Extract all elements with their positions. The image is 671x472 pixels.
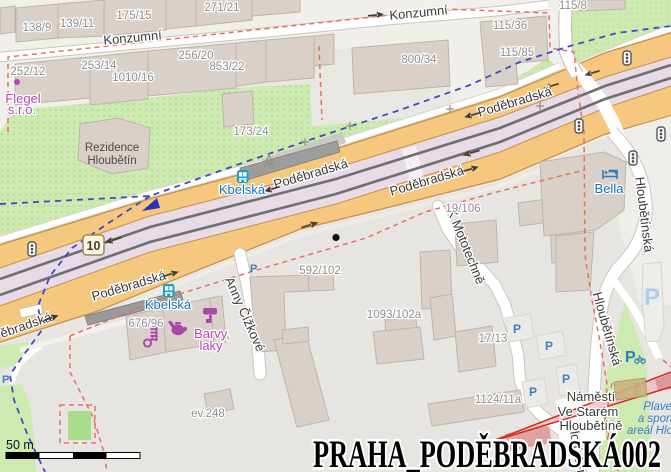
svg-text:P: P xyxy=(250,263,257,275)
svg-text:853/22: 853/22 xyxy=(209,61,244,73)
svg-text:P: P xyxy=(513,322,521,336)
svg-text:P: P xyxy=(2,374,9,386)
svg-text:800/34: 800/34 xyxy=(401,54,437,66)
svg-text:Bella: Bella xyxy=(595,181,625,196)
svg-text:115/36: 115/36 xyxy=(493,20,527,32)
svg-text:271/21: 271/21 xyxy=(204,2,239,14)
svg-text:Kbelská: Kbelská xyxy=(219,182,266,197)
svg-text:115/85: 115/85 xyxy=(500,47,534,59)
svg-text:P: P xyxy=(644,284,660,311)
svg-text:P: P xyxy=(545,339,553,353)
svg-text:laky: laky xyxy=(199,338,223,353)
svg-text:P: P xyxy=(562,372,570,386)
svg-text:256/20: 256/20 xyxy=(178,50,213,62)
svg-text:252/12: 252/12 xyxy=(10,66,45,78)
svg-text:s.r.o.: s.r.o. xyxy=(8,102,36,117)
svg-text:592/102: 592/102 xyxy=(299,265,341,277)
svg-text:50 m: 50 m xyxy=(6,438,34,452)
svg-text:P: P xyxy=(529,385,537,399)
svg-text:175/15: 175/15 xyxy=(116,10,151,22)
svg-text:a sport: a sport xyxy=(638,413,671,425)
svg-text:173/24: 173/24 xyxy=(233,126,269,138)
svg-text:1010/16: 1010/16 xyxy=(112,72,154,84)
svg-text:1093/102a: 1093/102a xyxy=(367,309,422,321)
svg-text:138/9: 138/9 xyxy=(23,22,52,34)
svg-text:Plave: Plave xyxy=(643,401,671,413)
svg-text:Kbelská: Kbelská xyxy=(145,297,192,312)
svg-text:ev.248: ev.248 xyxy=(191,408,225,420)
svg-text:P: P xyxy=(625,349,636,366)
svg-text:Náměstí: Náměstí xyxy=(567,389,616,404)
svg-text:676/96: 676/96 xyxy=(128,318,163,330)
svg-text:Hloubětíně: Hloubětíně xyxy=(560,418,623,433)
svg-text:139/11: 139/11 xyxy=(60,18,94,30)
svg-text:1124/11a: 1124/11a xyxy=(475,394,522,406)
svg-text:253/14: 253/14 xyxy=(81,60,117,72)
svg-text:PRAHA_PODĚBRADSKÁ002: PRAHA_PODĚBRADSKÁ002 xyxy=(313,432,661,472)
svg-text:Rezidence: Rezidence xyxy=(85,142,139,154)
svg-text:Ve Starém: Ve Starém xyxy=(558,404,619,419)
svg-text:Hloubětín: Hloubětín xyxy=(87,155,136,167)
svg-text:10: 10 xyxy=(87,239,101,253)
svg-text:19/106: 19/106 xyxy=(445,203,480,215)
svg-text:115/8: 115/8 xyxy=(559,0,587,12)
svg-text:17/13: 17/13 xyxy=(479,333,508,345)
